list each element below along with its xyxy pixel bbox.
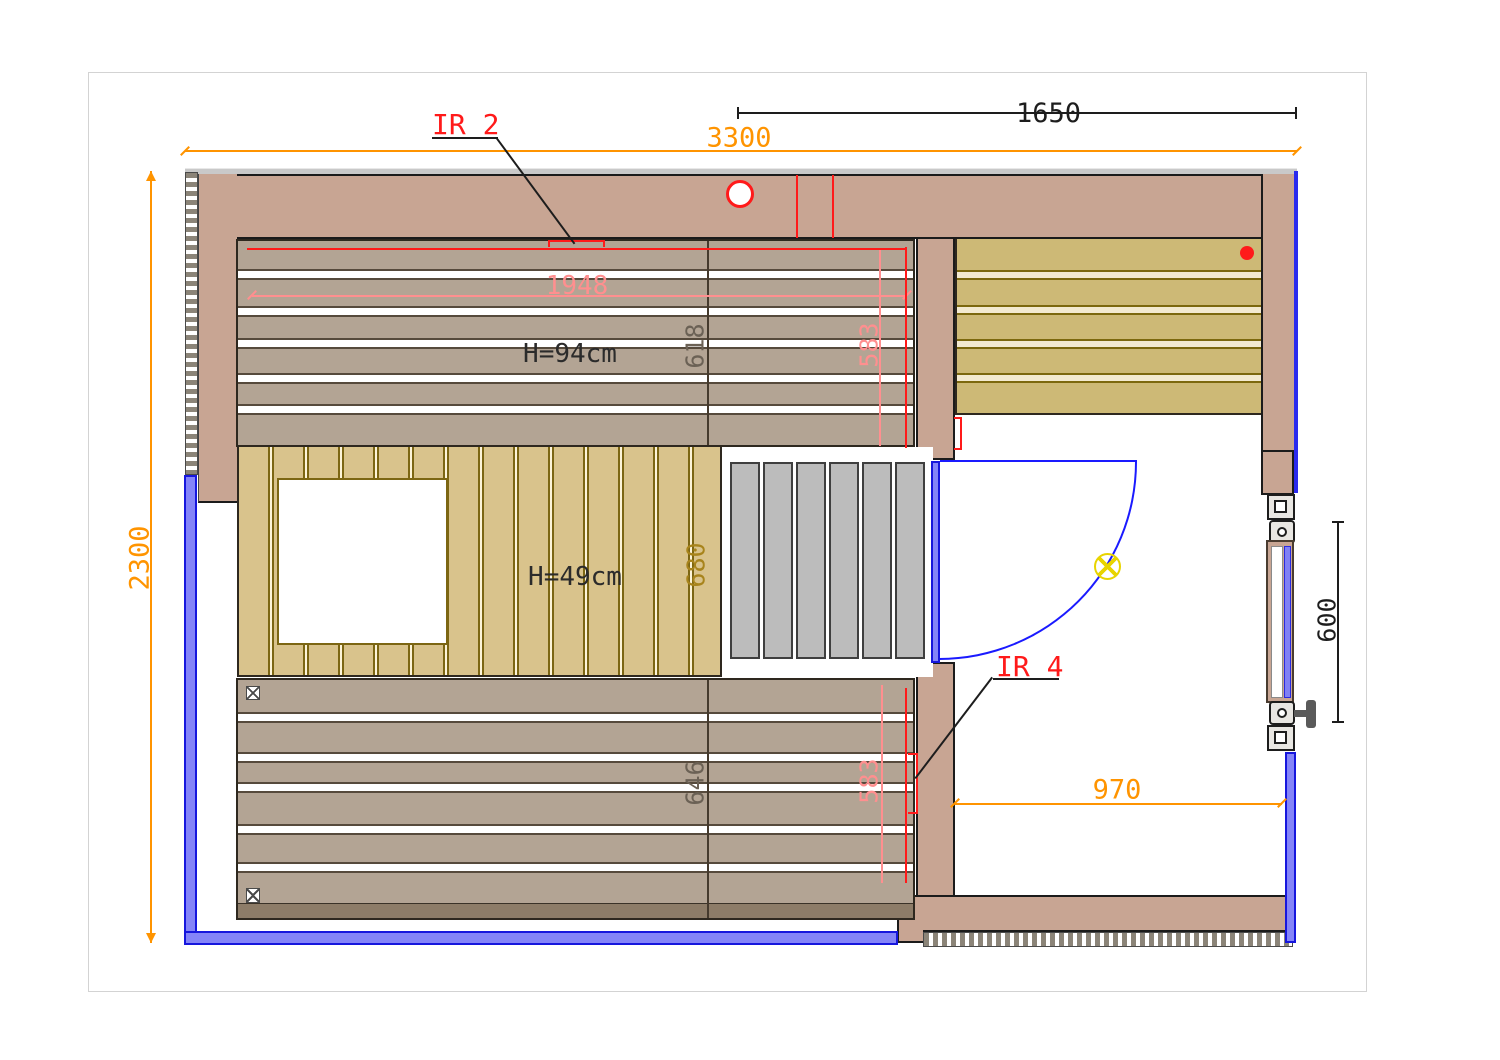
bench-post-x-box xyxy=(246,686,260,700)
label-ir4: IR 4 xyxy=(996,653,1063,681)
left-glass-wall xyxy=(184,475,197,945)
dim-600: 600 xyxy=(1315,597,1340,642)
door-leaf xyxy=(931,461,940,663)
ir2-underline xyxy=(432,137,498,139)
vent-circle-icon xyxy=(726,180,754,208)
left-wall-column xyxy=(198,174,237,503)
bottom-glass-wall xyxy=(184,931,898,945)
ir4-panel-marker xyxy=(908,753,918,814)
window-roller-bottom xyxy=(1269,701,1295,725)
floor-slat xyxy=(763,462,793,659)
dim-2300: 2300 xyxy=(127,525,154,590)
ir2-panel-line xyxy=(247,248,907,250)
floor-slat xyxy=(829,462,859,659)
label-ir2: IR 2 xyxy=(432,111,499,139)
window-top-block xyxy=(1261,450,1294,495)
ir-panel-marker-right xyxy=(954,417,962,450)
right-room-bench xyxy=(955,239,1261,415)
dim-1948: 1948 xyxy=(546,273,609,299)
dim-970: 970 xyxy=(1093,777,1142,804)
bottom-wall-foot xyxy=(897,930,923,943)
window-handle-bar xyxy=(1306,700,1316,728)
dim-646: 646 xyxy=(683,760,708,805)
vent-line xyxy=(832,175,834,238)
ir2-red-extent xyxy=(905,247,907,448)
sensor-red-dot xyxy=(1240,246,1254,260)
dim-3300: 3300 xyxy=(706,125,771,152)
window-glass xyxy=(1284,546,1291,698)
right-glass-wall-bottom xyxy=(1285,752,1296,943)
bench-post-x-box xyxy=(246,888,260,903)
door-pillar-lower xyxy=(916,662,955,895)
ir4-underline xyxy=(993,678,1059,680)
floor-slat xyxy=(895,462,925,659)
dim-680: 680 xyxy=(684,542,709,587)
floor-slat xyxy=(862,462,892,659)
vent-line xyxy=(796,175,798,238)
label-mid-bench-height: H=49cm xyxy=(528,564,622,590)
floor-slat xyxy=(730,462,760,659)
dim-618: 618 xyxy=(683,323,708,368)
label-upper-bench-height: H=94cm xyxy=(523,341,617,367)
door-pillar-upper xyxy=(916,239,955,460)
floor-slat xyxy=(796,462,826,659)
window-hinge-bottom xyxy=(1267,725,1295,751)
left-exterior-hatch xyxy=(185,172,198,475)
ceiling-light-icon xyxy=(1094,553,1121,580)
dim-583-lower: 583 xyxy=(857,758,882,803)
lower-bench xyxy=(236,678,915,920)
ir4-red-extent xyxy=(905,688,907,883)
window-hinge-top xyxy=(1267,494,1295,520)
dim-583-upper: 583 xyxy=(857,322,882,367)
right-wall-column xyxy=(1261,174,1294,493)
bottom-wall xyxy=(897,895,1293,932)
window-frame xyxy=(1266,540,1294,703)
cad-drawing-canvas: 1650 3300 2300 1948 618 583 H=94cm H=49c… xyxy=(0,0,1500,1060)
bottom-exterior-hatch xyxy=(923,932,1293,947)
right-wall-outer-line-top xyxy=(1294,171,1298,493)
dim-1650: 1650 xyxy=(1016,100,1081,127)
mid-bench-window-cutout xyxy=(277,478,448,645)
ir2-panel-marker xyxy=(548,240,605,247)
